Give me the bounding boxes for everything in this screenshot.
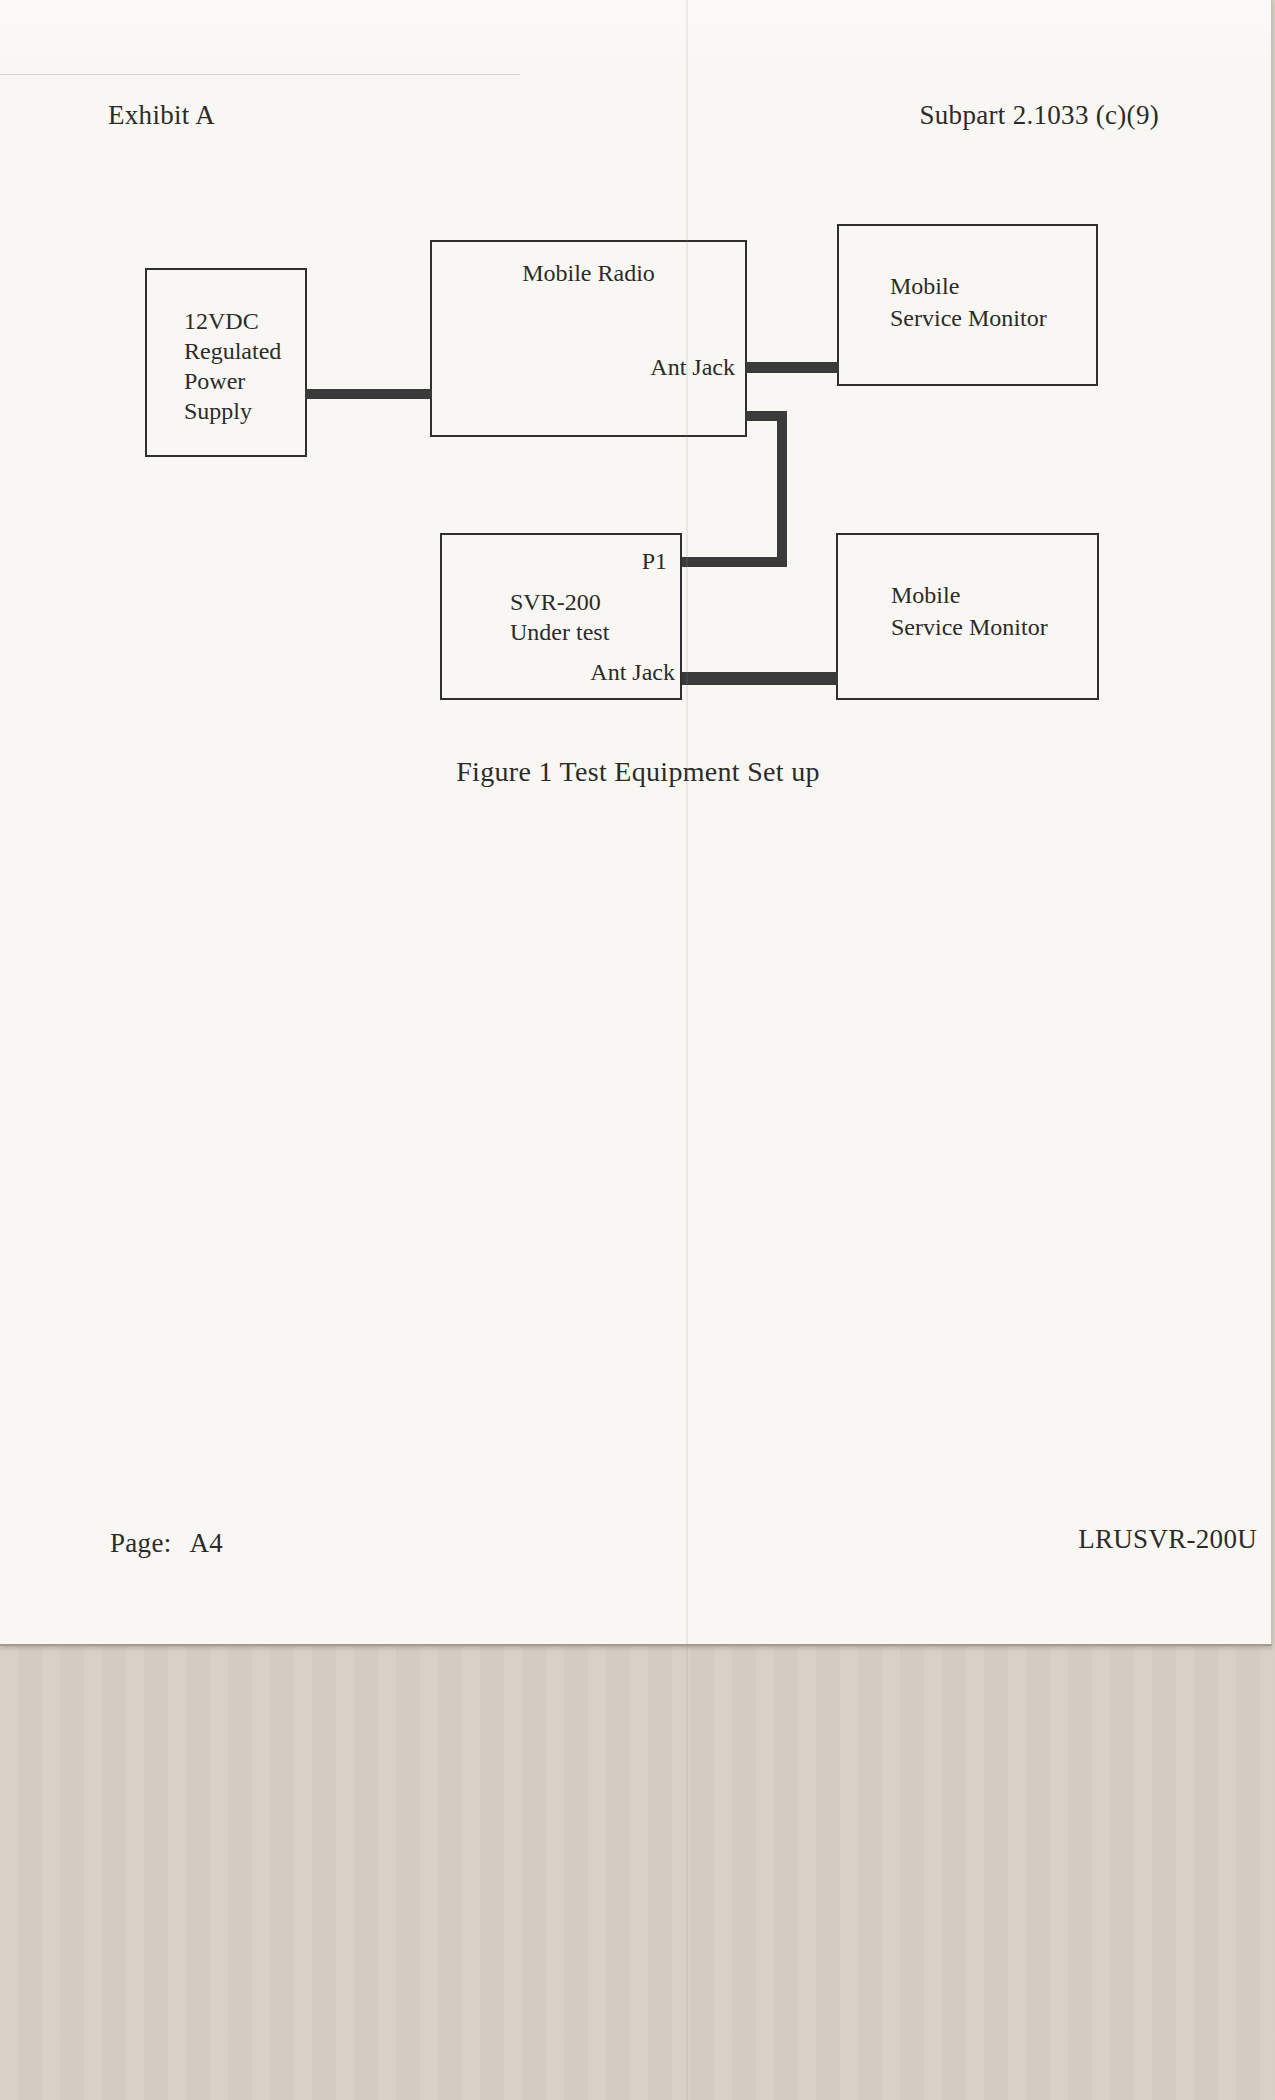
scan-artifact-line	[0, 74, 520, 75]
monitor-top-line-1: Mobile	[890, 270, 1047, 302]
connector-radio-to-p1-elbow-bottom	[682, 557, 787, 567]
box-mobile-radio: Mobile Radio Ant Jack	[430, 240, 747, 437]
header-exhibit-label: Exhibit A	[108, 100, 215, 131]
monitor-top-label: Mobile Service Monitor	[890, 270, 1047, 334]
monitor-bottom-label: Mobile Service Monitor	[891, 579, 1048, 643]
svr-ant-jack-port: Ant Jack	[590, 659, 675, 686]
svr-line-1: SVR-200	[510, 587, 609, 617]
monitor-bottom-line-1: Mobile	[891, 579, 1048, 611]
monitor-bottom-line-2: Service Monitor	[891, 611, 1048, 643]
power-supply-line-2: Regulated	[184, 336, 281, 366]
box-mobile-service-monitor-bottom: Mobile Service Monitor	[836, 533, 1099, 700]
footer-page-label: Page:	[110, 1528, 172, 1558]
svr-line-2: Under test	[510, 617, 609, 647]
figure-caption: Figure 1 Test Equipment Set up	[338, 756, 938, 788]
connector-radio-antjack-to-monitor	[746, 362, 839, 373]
connector-svr-antjack-to-monitor	[682, 672, 838, 685]
box-mobile-service-monitor-top: Mobile Service Monitor	[837, 224, 1098, 386]
footer-page-value: A4	[190, 1528, 224, 1558]
header-subpart-reference: Subpart 2.1033 (c)(9)	[920, 100, 1160, 131]
mobile-radio-title: Mobile Radio	[432, 260, 745, 287]
svr-label: SVR-200 Under test	[510, 587, 609, 647]
monitor-top-line-2: Service Monitor	[890, 302, 1047, 334]
power-supply-line-4: Supply	[184, 396, 281, 426]
connector-radio-to-p1-elbow-vertical	[777, 411, 787, 567]
connector-power-to-radio	[305, 389, 432, 399]
power-supply-label: 12VDC Regulated Power Supply	[184, 306, 281, 426]
box-power-supply: 12VDC Regulated Power Supply	[145, 268, 307, 457]
scanned-document-canvas: Exhibit A Subpart 2.1033 (c)(9) 12VDC Re…	[0, 0, 1275, 2100]
power-supply-line-3: Power	[184, 366, 281, 396]
svr-p1-port: P1	[642, 548, 667, 575]
box-svr-200-under-test: P1 SVR-200 Under test Ant Jack	[440, 533, 682, 700]
mobile-radio-ant-jack-port: Ant Jack	[650, 354, 735, 381]
footer-page-number: Page:A4	[110, 1528, 223, 1559]
document-page: Exhibit A Subpart 2.1033 (c)(9) 12VDC Re…	[0, 0, 1272, 1646]
footer-document-id: LRUSVR-200U	[1078, 1524, 1257, 1555]
power-supply-line-1: 12VDC	[184, 306, 281, 336]
